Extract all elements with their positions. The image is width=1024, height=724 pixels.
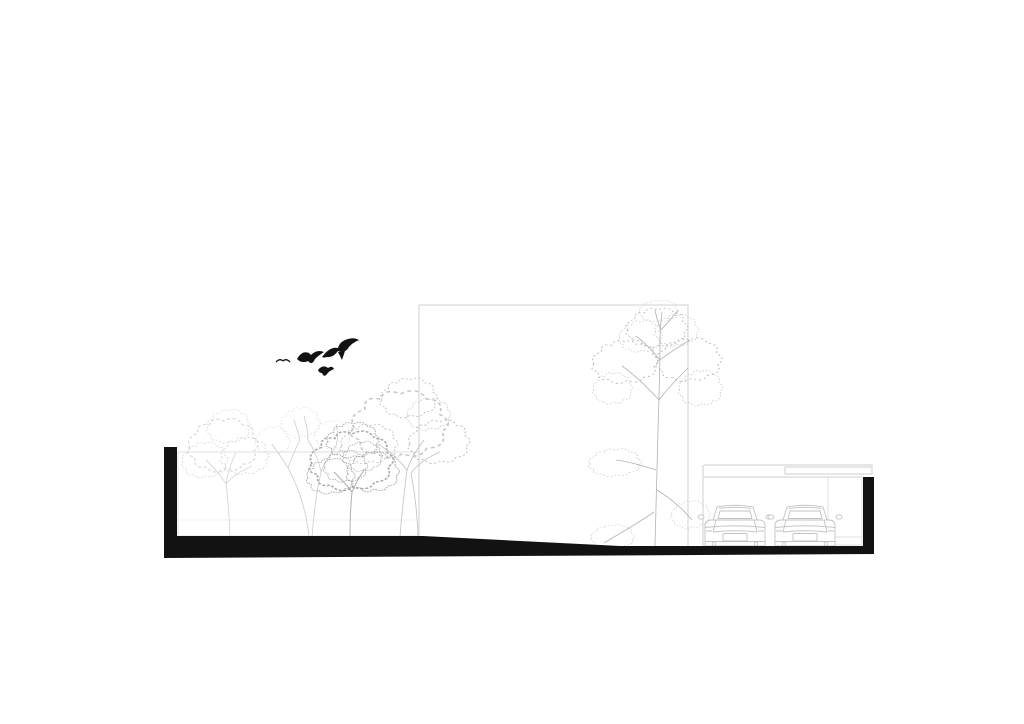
section-drawing — [0, 0, 1024, 724]
bird-medium-icon — [297, 351, 324, 363]
carport-roof-fascia — [785, 467, 872, 474]
terrace-outline — [178, 452, 425, 536]
birds-flock — [276, 338, 359, 376]
bird-small-1-icon — [276, 360, 290, 362]
car-right — [768, 505, 842, 546]
car-left — [698, 505, 772, 546]
tree-trunk — [206, 452, 252, 537]
tree-1 — [181, 409, 269, 537]
terrace-ground-line — [178, 452, 425, 536]
tree-foliage — [181, 409, 269, 478]
drawing-canvas — [0, 0, 1024, 724]
bird-large-tail — [338, 351, 345, 360]
tree-foliage — [255, 408, 352, 455]
bird-small-2-icon — [318, 366, 334, 375]
building-volume — [419, 305, 688, 548]
